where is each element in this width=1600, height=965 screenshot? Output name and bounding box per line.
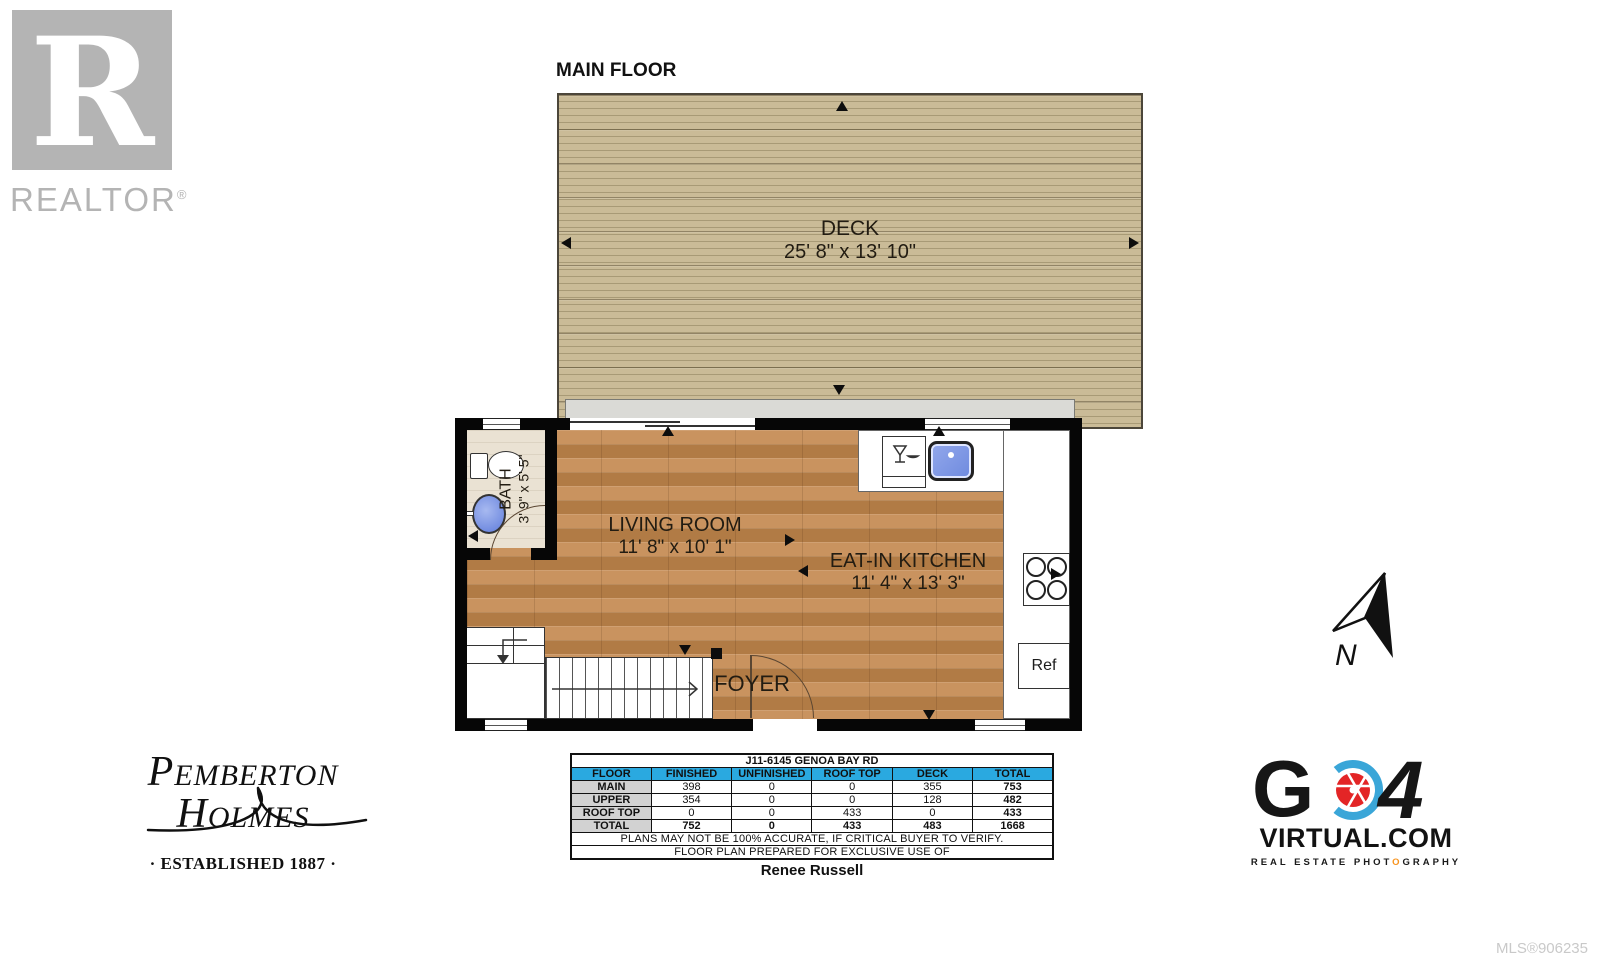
realtor-wordmark: REALTOR®	[10, 181, 190, 219]
refrigerator-label: Ref	[1032, 657, 1057, 675]
camera-marker-icon	[933, 426, 945, 436]
window-kitchen-south	[975, 719, 1025, 731]
tagline-lens-o: O	[1392, 857, 1402, 868]
living-room-label: LIVING ROOM 11' 8" x 10' 1"	[555, 514, 795, 559]
tagline-right: GRAPHY	[1403, 857, 1462, 868]
kitchen-dims: 11' 4" x 13' 3"	[788, 573, 1028, 595]
foyer-label: FOYER	[692, 671, 812, 697]
kitchen-sink-icon	[928, 441, 974, 481]
cell: 0	[732, 807, 812, 820]
refrigerator: Ref	[1018, 643, 1070, 689]
table-header-row: FLOOR FINISHED UNFINISHED ROOF TOP DECK …	[571, 768, 1053, 781]
cell: 483	[892, 820, 972, 833]
table-total-row: TOTAL 752 0 433 483 1668	[571, 820, 1053, 833]
table-title: J11-6145 GENOA BAY RD	[571, 754, 1053, 768]
cell: MAIN	[571, 781, 651, 794]
cell: TOTAL	[571, 820, 651, 833]
cell: 753	[973, 781, 1053, 794]
deck-area: DECK 25' 8" x 13' 10"	[557, 93, 1143, 429]
table-row: ROOF TOP 0 0 433 0 433	[571, 807, 1053, 820]
realtor-r-icon: R	[10, 8, 176, 174]
agent-name: Renee Russell	[570, 862, 1054, 879]
col-header: FINISHED	[651, 768, 731, 781]
kitchen-label: EAT-IN KITCHEN 11' 4" x 13' 3"	[788, 550, 1028, 595]
camera-marker-icon	[798, 565, 808, 577]
deck-dims: 25' 8" x 13' 10"	[559, 241, 1141, 264]
col-header: FLOOR	[571, 768, 651, 781]
stove-icon	[1023, 553, 1070, 606]
cell: 0	[732, 794, 812, 807]
realtor-logo: R REALTOR®	[10, 8, 190, 219]
col-header: ROOF TOP	[812, 768, 892, 781]
bath-name: BATH	[497, 468, 514, 509]
established-text: · ESTABLISHED 1887 ·	[108, 854, 378, 874]
cell: 1668	[973, 820, 1053, 833]
cell: 0	[812, 794, 892, 807]
camera-marker-icon	[679, 645, 691, 655]
pemberton-line: PEMBERTON	[108, 748, 378, 796]
camera-marker-icon	[468, 530, 478, 542]
kitchen-name: EAT-IN KITCHEN	[788, 550, 1028, 573]
sliding-door-panel	[570, 421, 680, 423]
cell: 354	[651, 794, 731, 807]
col-header: TOTAL	[973, 768, 1053, 781]
wall-right	[1070, 418, 1082, 731]
deck-name: DECK	[559, 217, 1141, 241]
entry-door-opening	[753, 719, 817, 731]
staircase	[545, 657, 713, 719]
aperture-icon	[1336, 773, 1370, 807]
go4-tagline: REAL ESTATE PHOTOGRAPHY	[1250, 857, 1462, 868]
realtor-r-letter: R	[30, 8, 156, 174]
cell: 128	[892, 794, 972, 807]
svg-text:4: 4	[1376, 756, 1424, 822]
camera-marker-icon	[1051, 568, 1061, 580]
cell: 398	[651, 781, 731, 794]
registered-mark: ®	[177, 187, 189, 202]
camera-marker-icon	[1129, 237, 1139, 249]
cell: 0	[732, 820, 812, 833]
pemberton-rest: EMBERTON	[174, 759, 338, 792]
camera-marker-icon	[662, 426, 674, 436]
cell: ROOF TOP	[571, 807, 651, 820]
holmes-line: HOLMES	[108, 790, 378, 838]
window-stairwell	[485, 719, 527, 731]
wall-bath-bottom-left	[467, 548, 490, 560]
prepared-for-text: FLOOR PLAN PREPARED FOR EXCLUSIVE USE OF	[571, 846, 1053, 860]
table-row: MAIN 398 0 0 355 753	[571, 781, 1053, 794]
mls-number: MLS®906235	[1496, 940, 1588, 957]
go4-virtual-logo: G 4 VIRTUAL.COM REAL ESTATE PHOTOGRAPHY	[1250, 756, 1462, 868]
camera-marker-icon	[561, 237, 571, 249]
pemberton-holmes-logo: PEMBERTON HOLMES · ESTABLISHED 1887 ·	[108, 748, 378, 874]
pemberton-cap: P	[148, 749, 175, 795]
living-room-dims: 11' 8" x 10' 1"	[555, 537, 795, 559]
square-marker-icon	[711, 648, 722, 659]
living-room-name: LIVING ROOM	[555, 514, 795, 537]
cell: 482	[973, 794, 1053, 807]
realtor-label: REALTOR	[10, 181, 177, 218]
window-bath	[483, 418, 520, 430]
camera-marker-icon	[923, 710, 935, 720]
north-arrow-icon: N	[1325, 563, 1410, 673]
go4-mark-icon: G 4	[1250, 756, 1462, 822]
camera-marker-icon	[836, 101, 848, 111]
wall-bath-bottom-right	[531, 548, 557, 560]
cell: 0	[892, 807, 972, 820]
area-table: J11-6145 GENOA BAY RD FLOOR FINISHED UNF…	[570, 753, 1054, 860]
tagline-left: REAL ESTATE PHOT	[1251, 857, 1392, 868]
cell: 433	[973, 807, 1053, 820]
cell: 433	[812, 820, 892, 833]
col-header: UNFINISHED	[732, 768, 812, 781]
floorplan-page: R REALTOR® MAIN FLOOR DECK 25' 8" x 13' …	[0, 0, 1600, 965]
disclaimer-text: PLANS MAY NOT BE 100% ACCURATE, IF CRITI…	[571, 833, 1053, 846]
camera-marker-icon	[785, 534, 795, 546]
col-header: DECK	[892, 768, 972, 781]
stair-landing	[460, 627, 545, 719]
cell: 433	[812, 807, 892, 820]
go4-wordmark: VIRTUAL.COM	[1250, 823, 1462, 854]
page-title: MAIN FLOOR	[556, 60, 676, 82]
north-arrow: N	[1325, 563, 1410, 678]
stair-direction-arrow-icon	[546, 658, 712, 718]
table-row: UPPER 354 0 0 128 482	[571, 794, 1053, 807]
cell: 0	[732, 781, 812, 794]
cell: 355	[892, 781, 972, 794]
cell: 0	[651, 807, 731, 820]
cell: 752	[651, 820, 731, 833]
camera-marker-icon	[833, 385, 845, 395]
holmes-cap: H	[176, 791, 207, 837]
svg-text:G: G	[1252, 756, 1314, 822]
stair-down-arrow-icon	[461, 630, 546, 690]
toilet-icon	[470, 453, 488, 479]
cell: UPPER	[571, 794, 651, 807]
main-floor-plan: BATH 3' 9" x 5' 5"	[455, 418, 1082, 731]
north-letter: N	[1335, 639, 1357, 672]
dishwasher-icon	[882, 436, 926, 488]
deck-label: DECK 25' 8" x 13' 10"	[559, 217, 1141, 264]
cell: 0	[812, 781, 892, 794]
wall-left	[455, 418, 467, 731]
holmes-rest: OLMES	[208, 801, 310, 834]
